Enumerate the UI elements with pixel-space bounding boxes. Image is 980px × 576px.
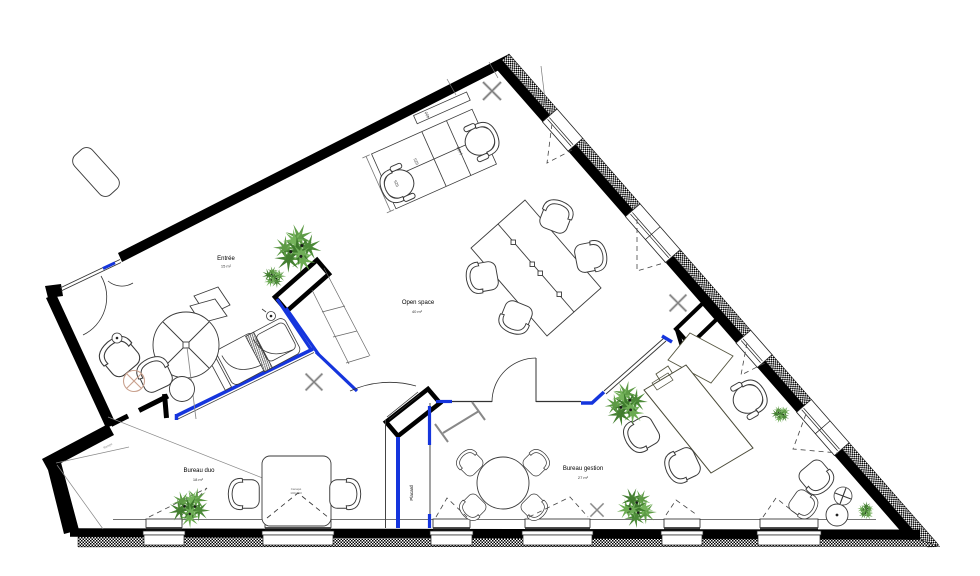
svg-text:Placard: Placard	[409, 485, 414, 501]
svg-text:Bureau gestion: Bureau gestion	[563, 466, 603, 472]
svg-text:15 m²: 15 m²	[221, 264, 232, 269]
svg-text:27 m²: 27 m²	[578, 475, 589, 480]
svg-text:Open space: Open space	[402, 300, 435, 306]
svg-text:140x190: 140x190	[290, 491, 302, 495]
svg-text:40 m²: 40 m²	[412, 309, 423, 314]
svg-text:Entrée: Entrée	[217, 256, 235, 262]
svg-text:18 m²: 18 m²	[193, 477, 204, 482]
svg-text:Bureau duo: Bureau duo	[183, 468, 215, 474]
